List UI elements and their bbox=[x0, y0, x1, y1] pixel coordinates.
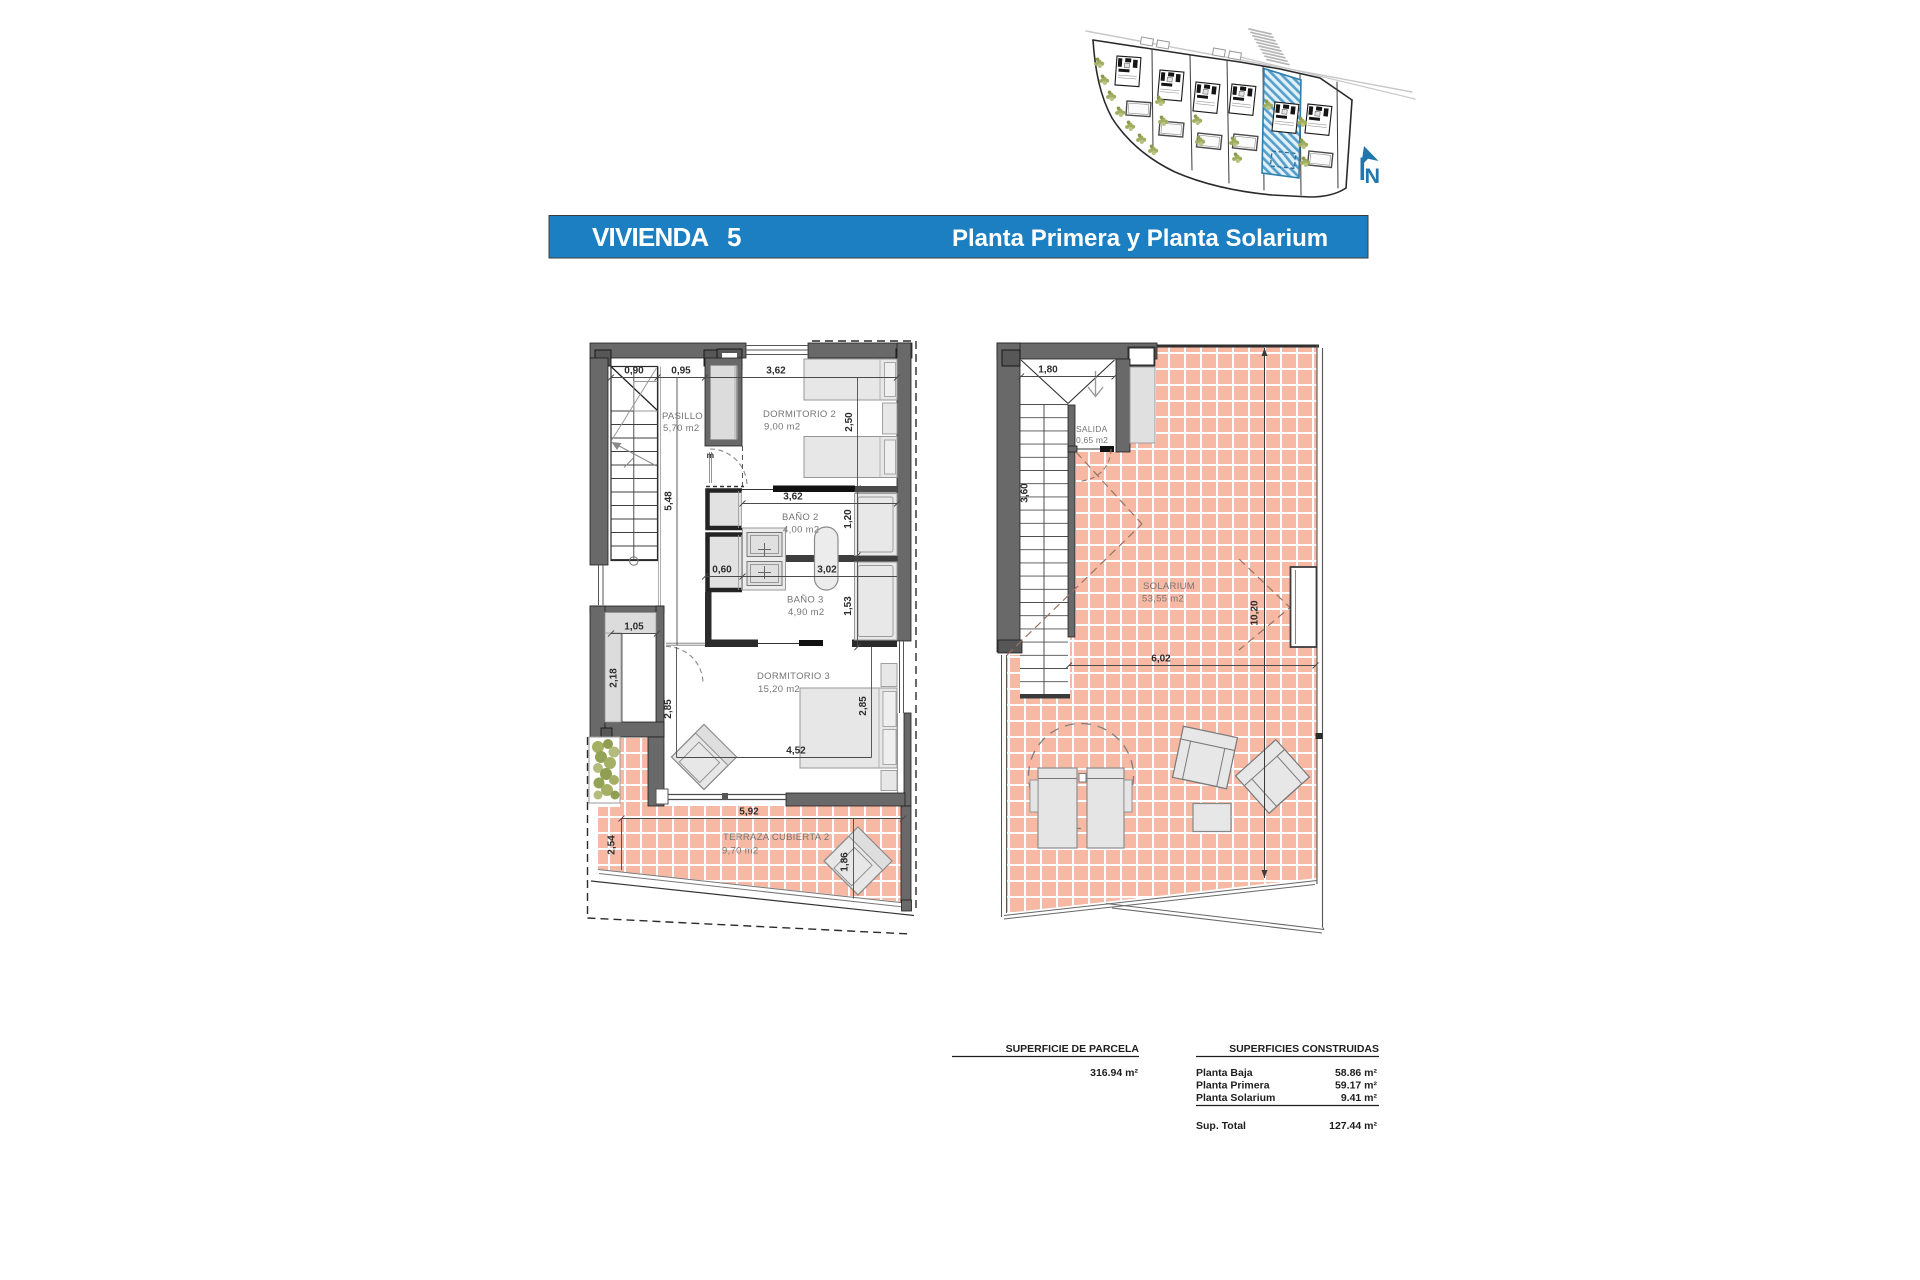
svg-text:1,05: 1,05 bbox=[624, 622, 644, 633]
svg-text:3,62: 3,62 bbox=[766, 366, 786, 377]
svg-text:2,50: 2,50 bbox=[844, 412, 855, 432]
svg-text:5,70 m2: 5,70 m2 bbox=[663, 423, 699, 434]
svg-text:BAÑO 3: BAÑO 3 bbox=[787, 595, 824, 606]
svg-text:4,52: 4,52 bbox=[786, 746, 806, 757]
svg-text:SUPERFICIE DE PARCELA: SUPERFICIE DE PARCELA bbox=[1006, 1043, 1140, 1055]
svg-text:BAÑO 2: BAÑO 2 bbox=[782, 512, 819, 523]
svg-text:Sup. Total: Sup. Total bbox=[1196, 1120, 1246, 1132]
svg-text:Planta Baja: Planta Baja bbox=[1196, 1067, 1253, 1079]
svg-text:58.86 m²: 58.86 m² bbox=[1335, 1067, 1378, 1079]
svg-text:SUPERFICIES CONSTRUIDAS: SUPERFICIES CONSTRUIDAS bbox=[1229, 1043, 1379, 1055]
svg-text:Planta Solarium: Planta Solarium bbox=[1196, 1092, 1275, 1104]
svg-text:5,48: 5,48 bbox=[664, 491, 675, 511]
svg-text:3,62: 3,62 bbox=[783, 492, 803, 503]
svg-text:2,18: 2,18 bbox=[609, 668, 620, 688]
svg-text:N: N bbox=[1365, 164, 1381, 188]
svg-text:1,80: 1,80 bbox=[1038, 365, 1058, 376]
svg-text:1,53: 1,53 bbox=[843, 596, 854, 616]
svg-text:2,85: 2,85 bbox=[663, 699, 674, 719]
svg-text:9,00 m2: 9,00 m2 bbox=[764, 422, 800, 433]
svg-text:TERRAZA CUBIERTA 2: TERRAZA CUBIERTA 2 bbox=[723, 832, 829, 843]
svg-text:15,20 m2: 15,20 m2 bbox=[758, 684, 800, 695]
svg-text:0,95: 0,95 bbox=[671, 366, 691, 377]
svg-text:2,54: 2,54 bbox=[607, 835, 618, 855]
svg-text:0,60: 0,60 bbox=[712, 565, 732, 576]
svg-text:10,20: 10,20 bbox=[1250, 600, 1261, 625]
svg-text:3,02: 3,02 bbox=[817, 565, 837, 576]
svg-text:Planta Primera y Planta Solari: Planta Primera y Planta Solarium bbox=[952, 225, 1328, 252]
svg-text:0,65 m2: 0,65 m2 bbox=[1076, 435, 1108, 445]
svg-text:DORMITORIO 2: DORMITORIO 2 bbox=[763, 409, 836, 420]
svg-text:PASILLO: PASILLO bbox=[662, 411, 703, 422]
svg-text:SOLARIUM: SOLARIUM bbox=[1143, 581, 1195, 592]
svg-text:5: 5 bbox=[727, 222, 741, 252]
svg-text:4,90 m2: 4,90 m2 bbox=[788, 607, 824, 618]
svg-text:9,70 m2: 9,70 m2 bbox=[722, 846, 758, 857]
svg-text:2,85: 2,85 bbox=[858, 696, 869, 716]
svg-text:1,20: 1,20 bbox=[843, 509, 854, 529]
svg-text:SALIDA: SALIDA bbox=[1076, 424, 1108, 434]
svg-text:VIVIENDA: VIVIENDA bbox=[592, 222, 709, 252]
svg-text:127.44 m²: 127.44 m² bbox=[1329, 1120, 1377, 1132]
svg-text:Planta Primera: Planta Primera bbox=[1196, 1080, 1270, 1092]
svg-text:316.94 m²: 316.94 m² bbox=[1090, 1067, 1138, 1079]
svg-text:1,86: 1,86 bbox=[840, 852, 851, 872]
svg-text:3,60: 3,60 bbox=[1020, 483, 1031, 503]
svg-text:m: m bbox=[707, 450, 715, 460]
svg-text:9.41 m²: 9.41 m² bbox=[1341, 1092, 1378, 1104]
svg-text:4,00 m2: 4,00 m2 bbox=[783, 525, 819, 536]
svg-text:6,02: 6,02 bbox=[1151, 654, 1171, 665]
svg-text:59.17 m²: 59.17 m² bbox=[1335, 1080, 1378, 1092]
svg-text:0,90: 0,90 bbox=[624, 366, 644, 377]
svg-text:5,92: 5,92 bbox=[739, 807, 759, 818]
svg-text:53,55 m2: 53,55 m2 bbox=[1142, 594, 1184, 605]
svg-text:DORMITORIO 3: DORMITORIO 3 bbox=[757, 671, 830, 682]
